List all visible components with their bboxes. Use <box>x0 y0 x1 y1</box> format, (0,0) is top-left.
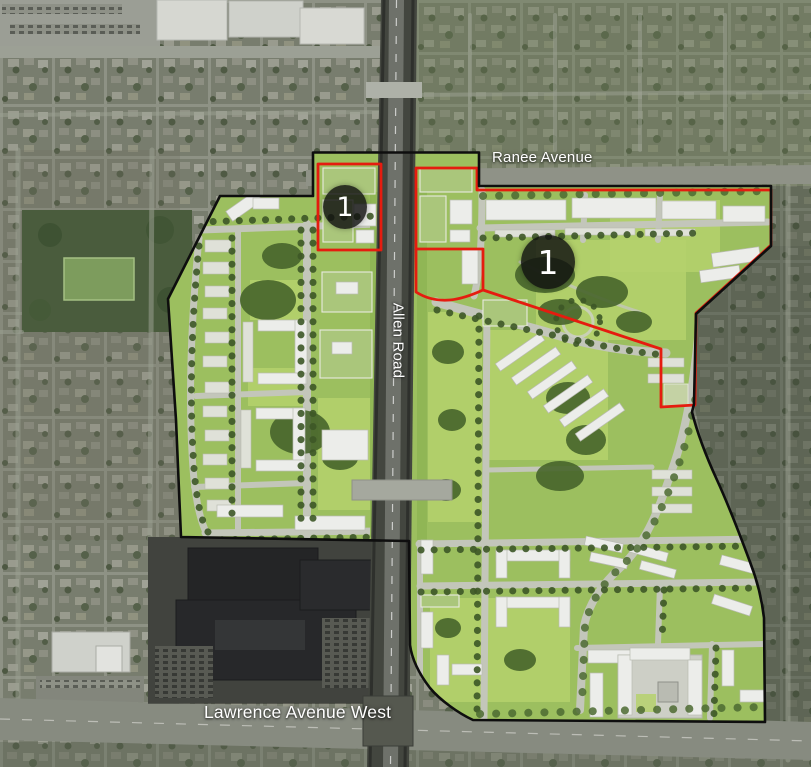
phase1-marker-west: 1 <box>323 185 367 229</box>
site-bridge <box>352 480 452 500</box>
allen-road-label: Allen Road <box>390 286 407 396</box>
lawrence-avenue-west-label: Lawrence Avenue West <box>204 702 391 723</box>
north-overpass <box>366 82 422 98</box>
aerial-masterplan-map: Ranee Avenue Allen Road Lawrence Avenue … <box>0 0 811 767</box>
phase1-marker-east: 1 <box>521 235 575 289</box>
ranee-avenue-label: Ranee Avenue <box>492 149 593 166</box>
